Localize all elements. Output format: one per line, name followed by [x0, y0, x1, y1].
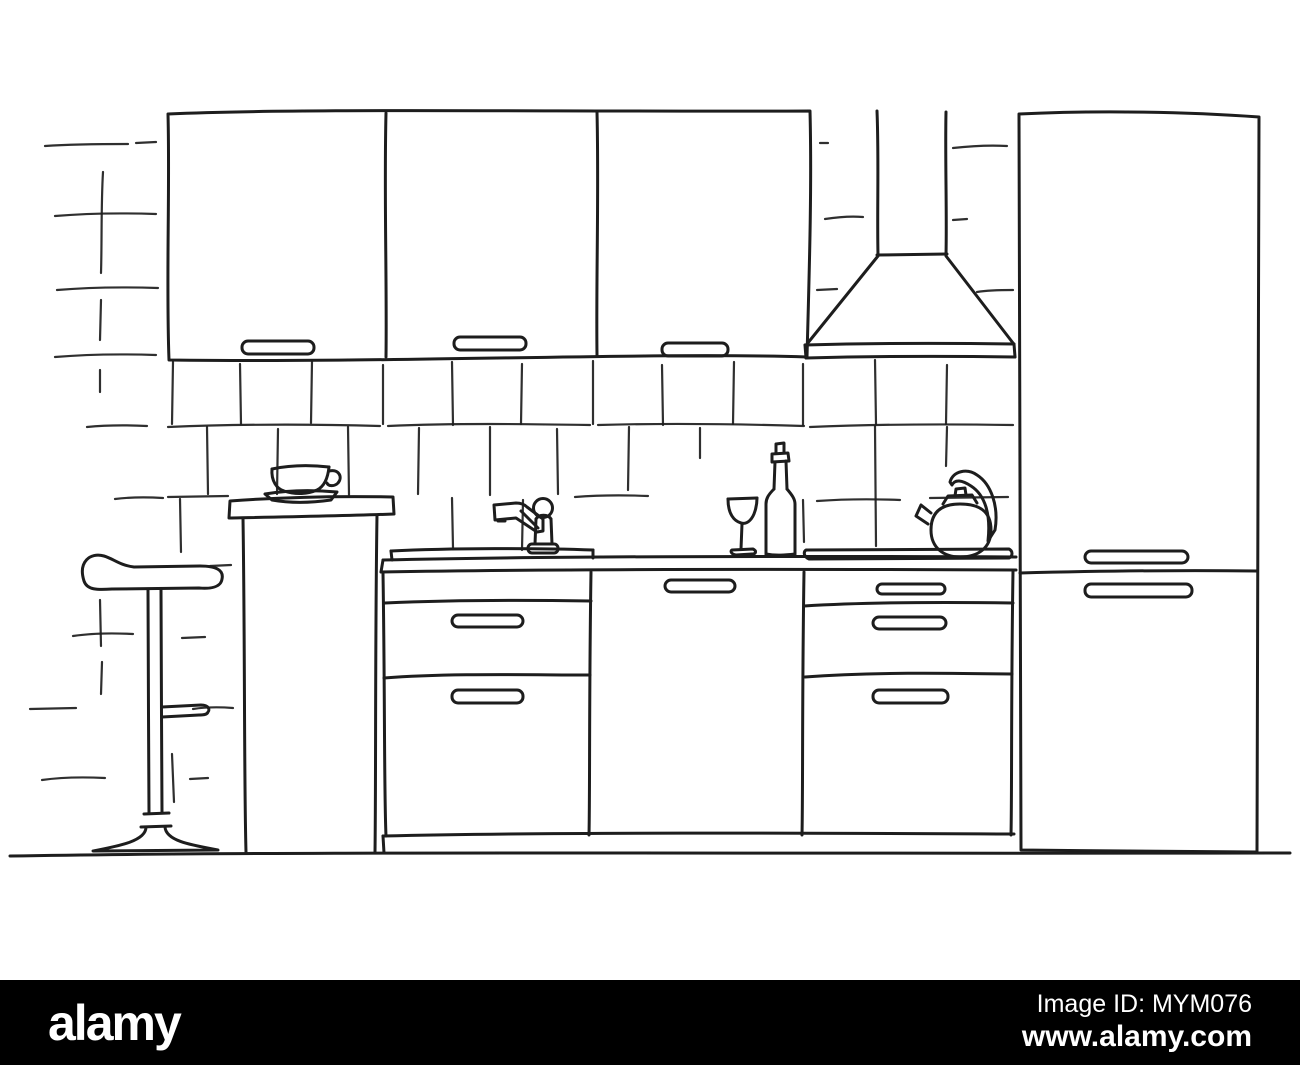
kitchen-sketch [0, 0, 1300, 980]
kettle [916, 471, 996, 557]
door-handle [452, 690, 523, 703]
wall-cabinet-outline [168, 111, 811, 361]
stool-base [93, 827, 218, 851]
tall-cabinet-handle [1085, 584, 1192, 597]
drawer-handle [452, 615, 523, 627]
site-url: www.alamy.com [1022, 1019, 1252, 1055]
tall-cabinet-handle [1085, 551, 1188, 563]
wall-cabinet-divider [385, 113, 386, 357]
stool-seat [82, 555, 222, 589]
bar-counter-top [229, 497, 394, 518]
image-meta: Image ID: MYM076 www.alamy.com [1022, 990, 1252, 1055]
countertop [381, 549, 1016, 572]
base-cabinet-door [665, 572, 804, 835]
wall-cabinet-divider [597, 112, 598, 355]
tall-cabinet-divider [1020, 571, 1257, 573]
stock-image-page: alamy Image ID: MYM076 www.alamy.com [0, 0, 1300, 1065]
tall-cabinet-outline [1019, 112, 1259, 852]
door-handle [665, 580, 735, 592]
drawer-unit [804, 571, 1013, 835]
image-id: Image ID: MYM076 [1022, 990, 1252, 1019]
wine-glass [728, 498, 757, 555]
drawer-handle [873, 617, 946, 629]
drawer-handle [873, 690, 948, 703]
drawer-handle [877, 584, 945, 594]
sink-rim [391, 549, 593, 551]
sink-base-cabinet [383, 572, 591, 836]
bottle [766, 443, 795, 555]
left-wall-tiles [30, 142, 233, 802]
plinth [383, 833, 1014, 853]
stool-footrest [162, 705, 209, 717]
wall-cabinets [168, 111, 811, 361]
range-hood [805, 111, 1015, 358]
tall-cabinet [1019, 112, 1259, 852]
alamy-logo: alamy [48, 998, 180, 1048]
cabinet-handle [242, 341, 314, 354]
bar-counter [229, 497, 394, 852]
cabinet-handle [454, 337, 526, 350]
faucet [494, 499, 558, 554]
cabinet-handle [662, 343, 728, 356]
floor-line [10, 853, 1290, 856]
bar-stool [82, 555, 222, 851]
kettle-spout [916, 505, 931, 524]
watermark-bar: alamy Image ID: MYM076 www.alamy.com [0, 980, 1300, 1065]
